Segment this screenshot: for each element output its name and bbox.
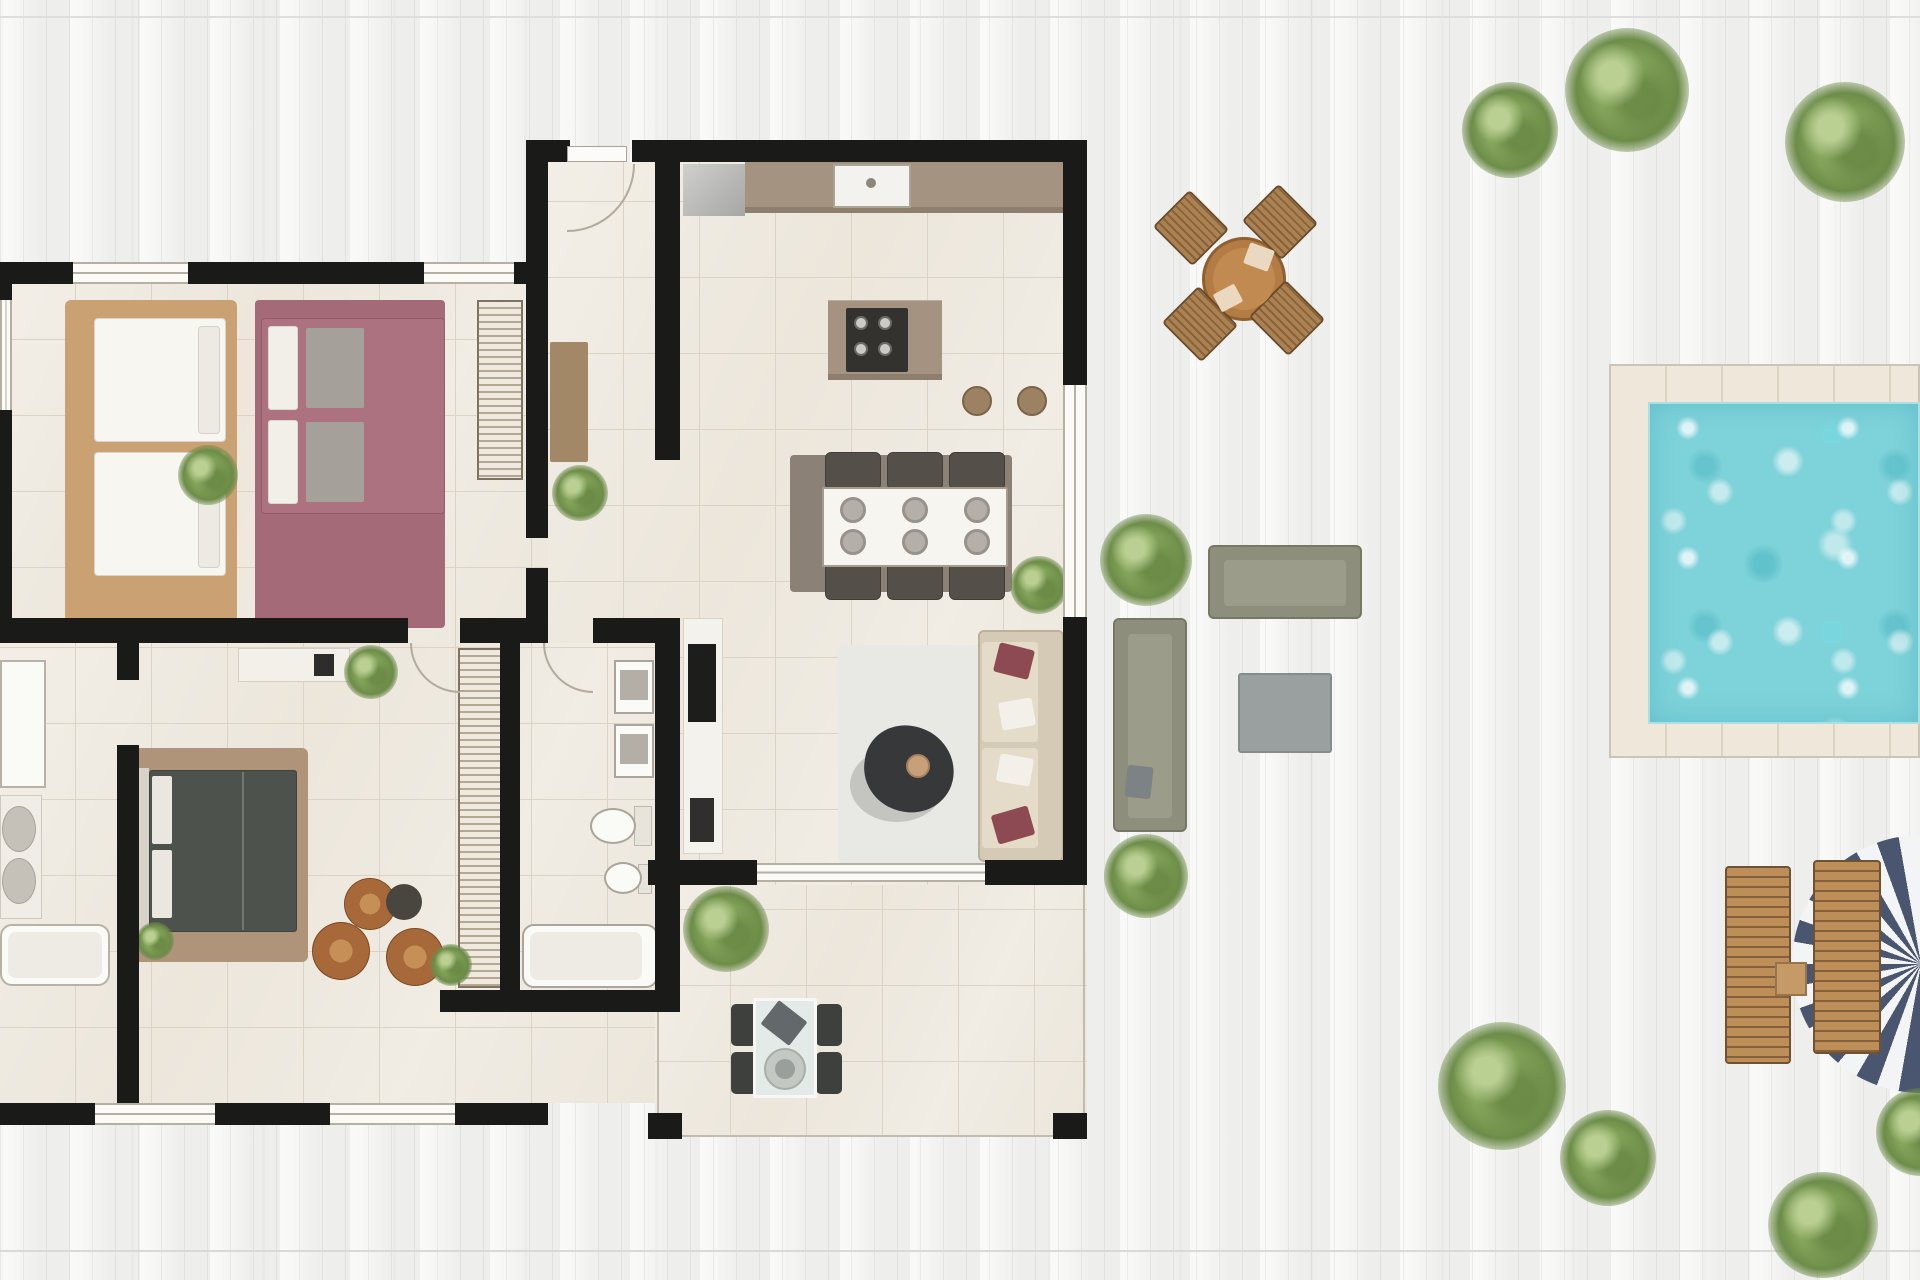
plate-2 bbox=[902, 497, 928, 523]
bush-top-2 bbox=[1565, 28, 1689, 152]
outdoor-coffee-table bbox=[1238, 673, 1332, 753]
sliding-door-terrace bbox=[757, 863, 985, 882]
master-pillow-1 bbox=[152, 776, 172, 844]
bath1-basin-2 bbox=[2, 858, 36, 904]
bath1-shower bbox=[0, 660, 46, 788]
toilet-bowl bbox=[590, 808, 636, 844]
outdoor-plant-2 bbox=[1104, 834, 1188, 918]
double-bed-blanket-1 bbox=[306, 328, 364, 408]
bath1-tub-inner bbox=[8, 932, 102, 978]
plate-1 bbox=[840, 497, 866, 523]
wall-left-edge-top bbox=[0, 284, 12, 300]
wall-entry-left-upper bbox=[526, 140, 548, 538]
wall-mid-2 bbox=[460, 618, 543, 643]
terrace-plant bbox=[683, 886, 769, 972]
wall-bath1-divider-top bbox=[117, 643, 139, 680]
double-bed-blanket-2 bbox=[306, 422, 364, 502]
wardrobe-bedroom2 bbox=[477, 300, 523, 480]
dining-chair-5 bbox=[887, 562, 943, 600]
twin-bed-1-pillow bbox=[198, 326, 220, 434]
dining-chair-2 bbox=[887, 452, 943, 490]
wicker-armchair-1 bbox=[312, 922, 370, 980]
master-pillow-2 bbox=[152, 850, 172, 918]
bush-top-3 bbox=[1785, 82, 1905, 202]
wall-mid-3 bbox=[593, 618, 655, 643]
coffee-table-bowl bbox=[906, 754, 930, 778]
wall-left-edge-bottom bbox=[0, 410, 12, 643]
hall-runner-rug bbox=[550, 342, 588, 462]
sun-lounger-2 bbox=[1813, 860, 1881, 1054]
wall-bath1-divider-bottom bbox=[117, 745, 139, 1103]
outdoor-sofa-horizontal-seat bbox=[1224, 560, 1346, 606]
burner-1 bbox=[854, 316, 868, 330]
bush-top-1 bbox=[1462, 82, 1558, 178]
lounger-side-table bbox=[1775, 962, 1807, 996]
window-bedroom-top-2 bbox=[424, 262, 514, 284]
master-plant-2 bbox=[136, 922, 174, 960]
wall-bath2-right bbox=[655, 618, 680, 1012]
fridge bbox=[683, 164, 745, 216]
entry-door-leaf bbox=[567, 146, 627, 162]
bath1-basin-1 bbox=[2, 806, 36, 852]
av-item bbox=[690, 798, 714, 842]
bath2-sink-2-basin bbox=[620, 734, 648, 764]
dining-chair-4 bbox=[825, 562, 881, 600]
window-bedroom-bottom-1 bbox=[95, 1103, 215, 1125]
deck-seam-top bbox=[0, 16, 1920, 18]
bar-stool-2 bbox=[1017, 386, 1047, 416]
dining-chair-1 bbox=[825, 452, 881, 490]
outdoor-plant-1 bbox=[1100, 514, 1192, 606]
master-plant-1 bbox=[344, 645, 398, 699]
bath2-sink-1-basin bbox=[620, 670, 648, 700]
window-bedroom-top-1 bbox=[73, 262, 188, 284]
wall-living-bottom-left bbox=[648, 860, 757, 885]
terrace-edge-bottom bbox=[655, 1135, 1087, 1137]
floor-lower-rooms bbox=[0, 643, 655, 1103]
wardrobe-master bbox=[458, 648, 502, 988]
double-bed-pillow-2 bbox=[268, 420, 298, 504]
wall-bottom-bedrooms bbox=[0, 1103, 548, 1125]
terrace-post-left bbox=[648, 1113, 682, 1139]
bath2-tub-inner bbox=[530, 932, 642, 980]
burner-3 bbox=[854, 342, 868, 356]
wall-kitchen-divider bbox=[655, 140, 680, 460]
kitchen-faucet bbox=[866, 178, 876, 188]
master-console-decor bbox=[314, 654, 334, 676]
pool-water bbox=[1648, 402, 1920, 724]
wall-bath2-bottom bbox=[440, 990, 680, 1012]
plate-5 bbox=[902, 529, 928, 555]
burner-2 bbox=[878, 316, 892, 330]
wall-mid-1 bbox=[0, 618, 408, 643]
window-living-right bbox=[1063, 385, 1087, 617]
window-left-edge bbox=[0, 300, 12, 410]
wall-bath2-divider bbox=[500, 643, 520, 990]
master-bed-foldline bbox=[242, 772, 244, 930]
burner-4 bbox=[878, 342, 892, 356]
dining-plant bbox=[1010, 556, 1068, 614]
bush-bottom-4 bbox=[1876, 1088, 1920, 1176]
bidet-bowl bbox=[604, 862, 642, 894]
wall-living-bottom-right bbox=[985, 860, 1087, 885]
double-bed-pillow-1 bbox=[268, 326, 298, 410]
master-side-table bbox=[386, 884, 422, 920]
bush-bottom-3 bbox=[1768, 1172, 1878, 1278]
dining-chair-3 bbox=[949, 452, 1005, 490]
wall-top-central-right bbox=[632, 140, 1087, 162]
wall-right-lower bbox=[1063, 617, 1087, 885]
sofa-pillow-white-1 bbox=[998, 697, 1036, 730]
tv bbox=[688, 644, 716, 722]
bar-stool-1 bbox=[962, 386, 992, 416]
wall-right-upper bbox=[1063, 140, 1087, 385]
plate-4 bbox=[840, 529, 866, 555]
toilet-tank bbox=[634, 806, 652, 846]
bush-bottom-1 bbox=[1438, 1022, 1566, 1150]
terrace-tray-inner bbox=[775, 1059, 795, 1079]
outdoor-sofa-pillow bbox=[1124, 765, 1153, 800]
floor-plan-canvas bbox=[0, 0, 1920, 1280]
hall-plant bbox=[552, 465, 608, 521]
deck-seam-bottom bbox=[0, 1250, 1920, 1252]
twin-plant bbox=[178, 445, 238, 505]
terrace-edge-right bbox=[1083, 885, 1085, 1135]
terrace-chair-4 bbox=[816, 1052, 842, 1094]
sofa-pillow-white-2 bbox=[996, 753, 1034, 786]
master-plant-3 bbox=[430, 944, 472, 986]
plate-6 bbox=[964, 529, 990, 555]
terrace-chair-2 bbox=[816, 1004, 842, 1046]
dining-chair-6 bbox=[949, 562, 1005, 600]
plate-3 bbox=[964, 497, 990, 523]
entry-door-arc bbox=[499, 96, 635, 232]
terrace-post-right bbox=[1053, 1113, 1087, 1139]
bush-bottom-2 bbox=[1560, 1110, 1656, 1206]
window-bedroom-bottom-2 bbox=[330, 1103, 455, 1125]
